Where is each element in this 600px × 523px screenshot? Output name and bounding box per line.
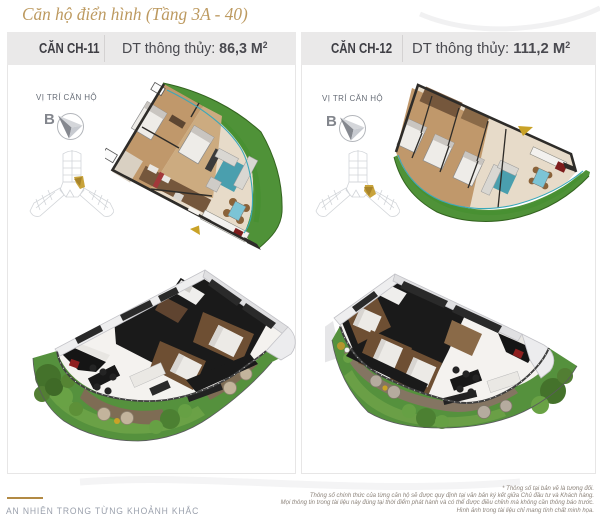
svg-text:B: B xyxy=(44,111,55,128)
svg-text:B: B xyxy=(326,113,337,130)
